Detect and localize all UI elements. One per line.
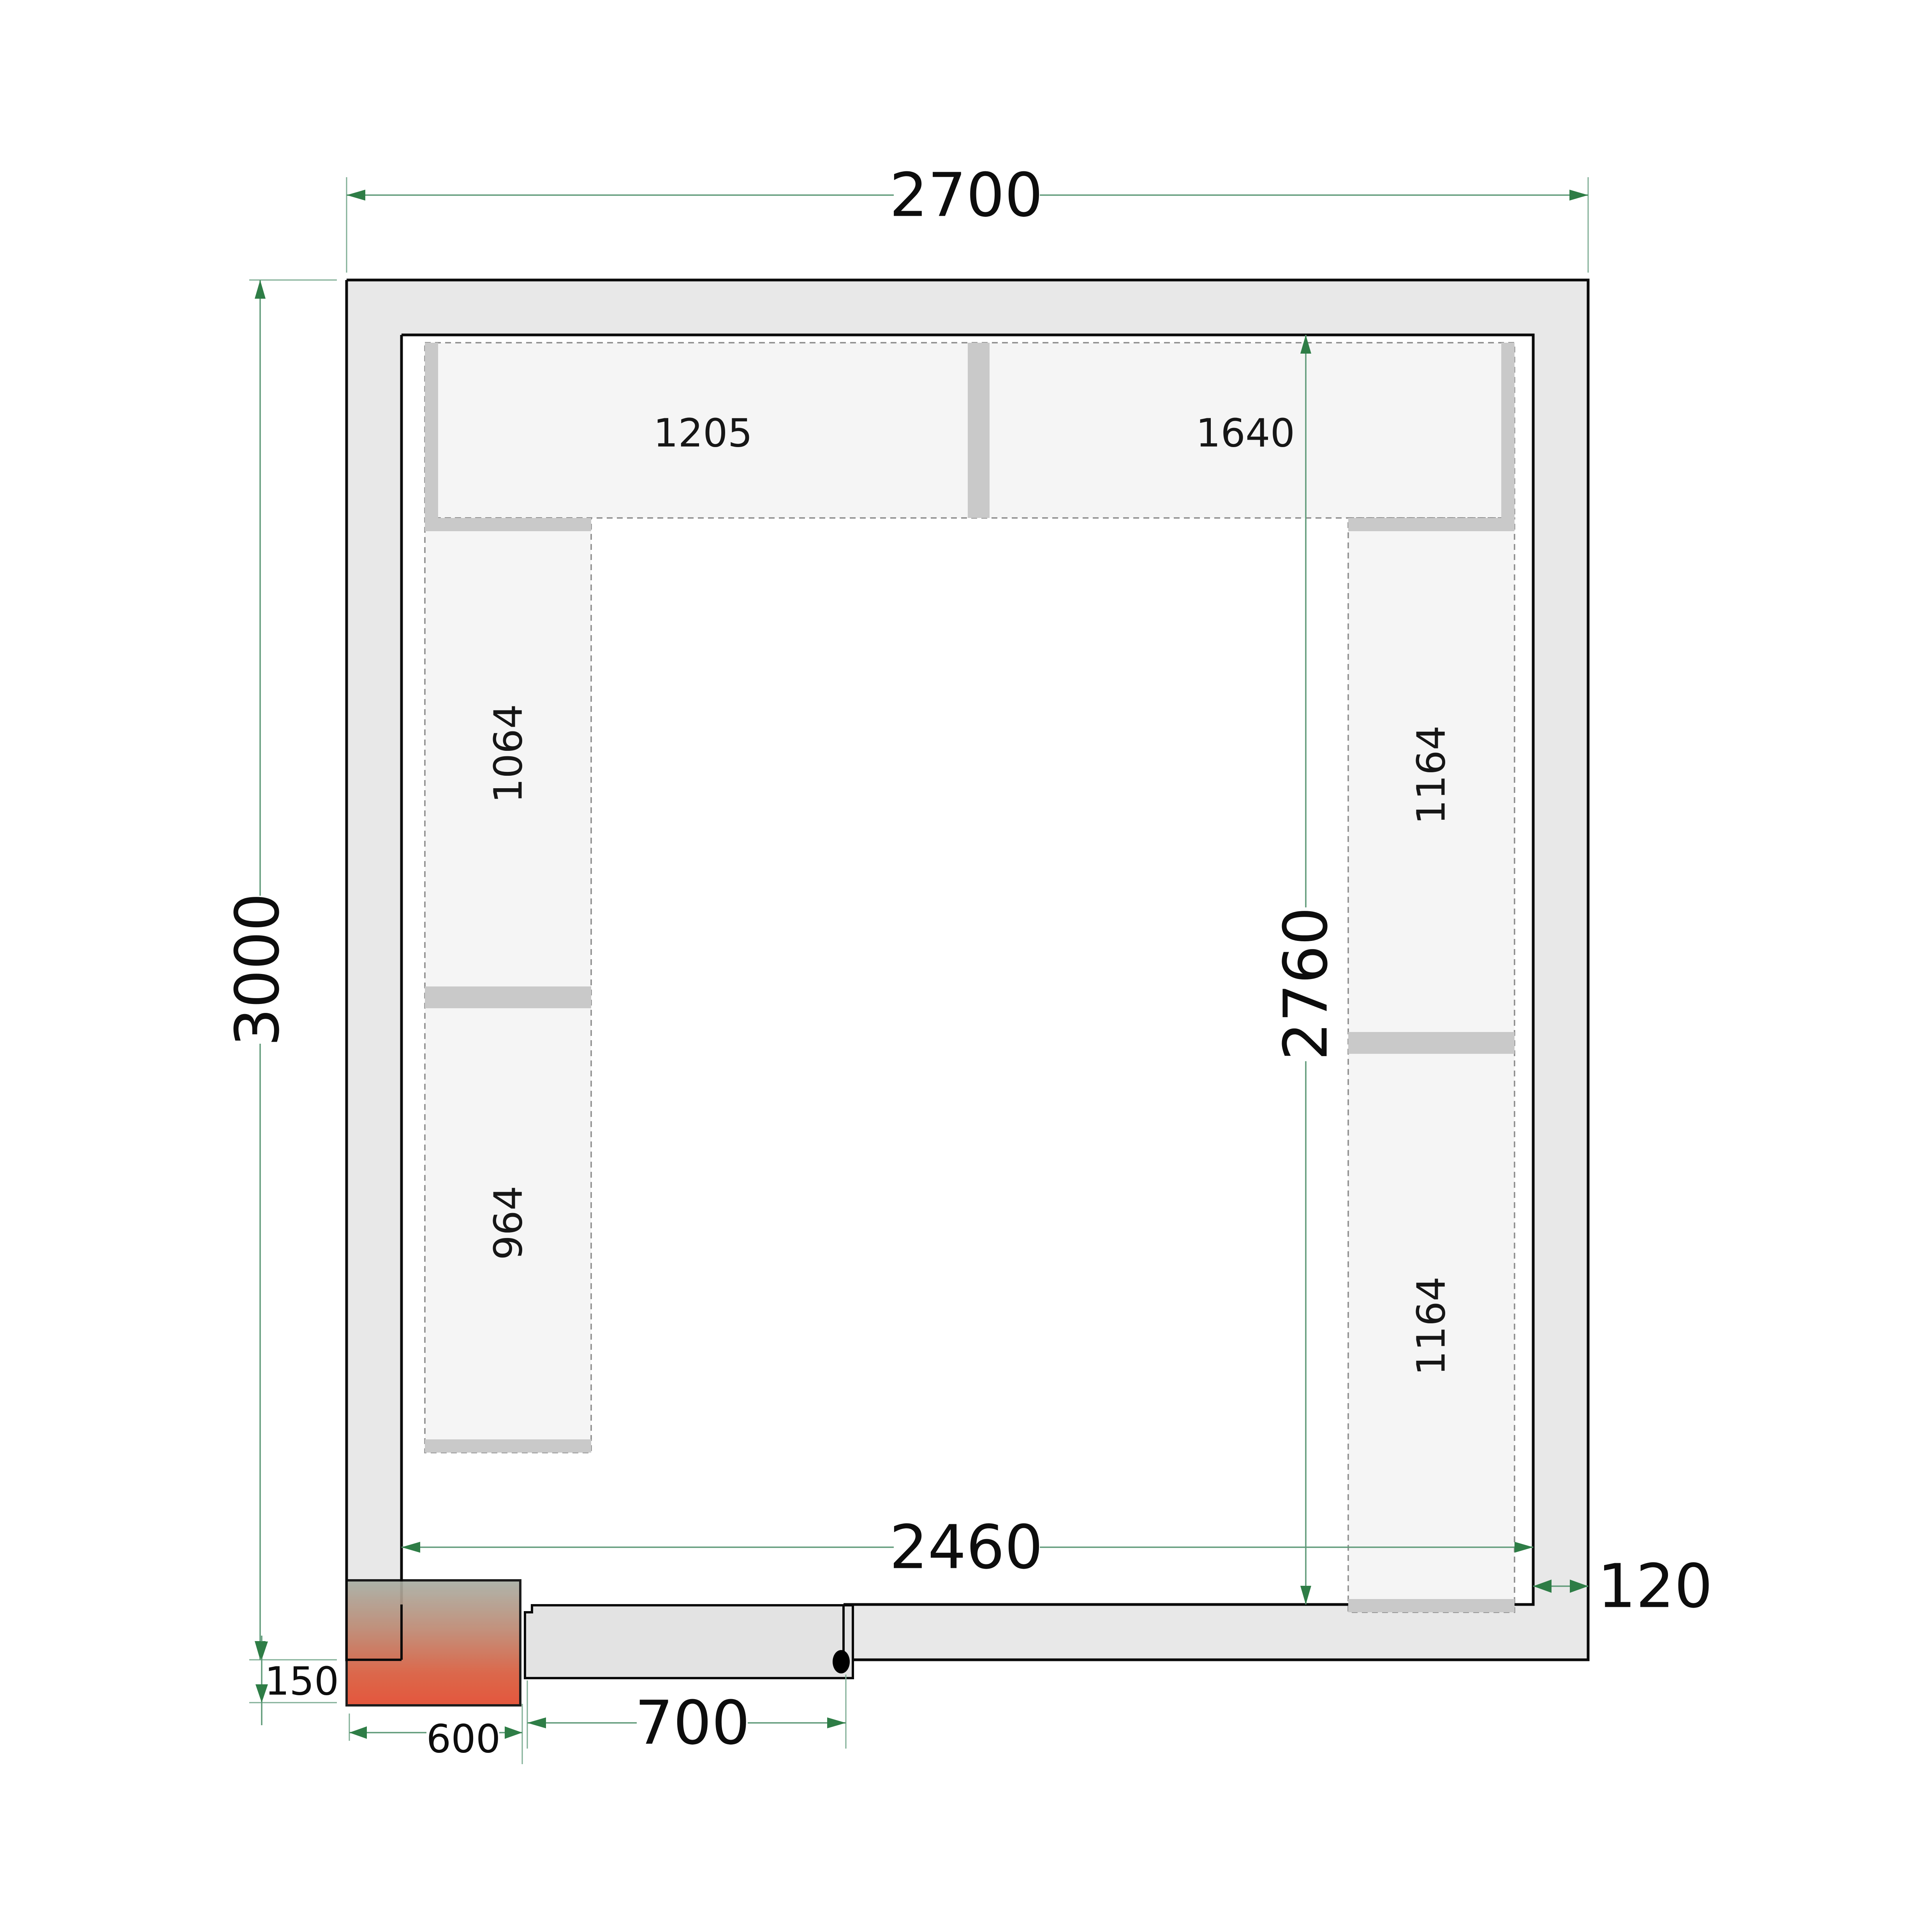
arrow-left-icon [347, 190, 365, 201]
arrow-right-icon [505, 1726, 522, 1739]
shelf-endcap-left-top [425, 518, 591, 531]
shelf-endcap-right-top [1348, 518, 1515, 531]
door-leaf [525, 1605, 853, 1678]
floor-plan-page: 1205 1640 1064 964 1164 1164 2700 3000 [0, 0, 1932, 1932]
dimension-outer-width: 2700 [347, 160, 1588, 273]
dimension-value: 2460 [889, 1512, 1043, 1583]
dimension-value: 120 [1597, 1551, 1713, 1622]
wall-top [347, 280, 1588, 335]
shelf-label-right-upper: 1164 [1409, 726, 1454, 825]
arrow-down-icon [255, 1641, 268, 1660]
dimension-value: 3000 [222, 893, 293, 1046]
arrow-up-icon [255, 280, 266, 299]
dimension-value: 600 [426, 1716, 501, 1762]
dimension-value: 2760 [1271, 907, 1341, 1060]
dimension-unit-width: 600 [349, 1704, 522, 1764]
shelf-left-column [425, 518, 591, 1453]
condensing-unit [347, 1580, 520, 1705]
dimension-value: 150 [265, 1659, 339, 1704]
shelf-label-top-right: 1640 [1196, 410, 1295, 456]
shelf-endcap-top-right [1501, 343, 1515, 518]
dimension-unit-offset: 150 [249, 1636, 339, 1725]
wall-left [347, 280, 402, 1660]
wall-right [1533, 280, 1588, 1660]
shelf-divider-left [425, 986, 591, 1008]
cold-room-floor-plan: 1205 1640 1064 964 1164 1164 2700 3000 [0, 0, 1932, 1932]
dimension-outer-height: 3000 [222, 280, 337, 1660]
arrow-left-icon [349, 1726, 367, 1739]
shelf-label-right-lower: 1164 [1409, 1277, 1454, 1376]
door-handle-icon [833, 1650, 850, 1673]
shelf-endcap-right-bottom [1348, 1599, 1515, 1612]
shelf-endcap-left-bottom [425, 1439, 591, 1453]
arrow-left-icon [527, 1717, 546, 1728]
shelf-divider-top [968, 343, 990, 518]
arrow-right-icon [1569, 190, 1588, 201]
wall-bottom [844, 1604, 1533, 1660]
shelf-label-left-lower: 964 [486, 1186, 531, 1260]
dimension-value: 700 [635, 1688, 750, 1758]
shelf-label-top-left: 1205 [653, 410, 753, 456]
shelf-divider-right [1348, 1032, 1515, 1054]
dimension-door-width: 700 [527, 1675, 846, 1758]
arrow-right-icon [827, 1717, 846, 1728]
shelf-endcap-top-left [425, 343, 438, 518]
door [525, 1604, 853, 1678]
dimension-value: 2700 [889, 160, 1043, 231]
condensing-unit-block [347, 1580, 520, 1705]
shelf-right-column [1348, 518, 1515, 1612]
shelf-label-left-upper: 1064 [486, 704, 531, 803]
